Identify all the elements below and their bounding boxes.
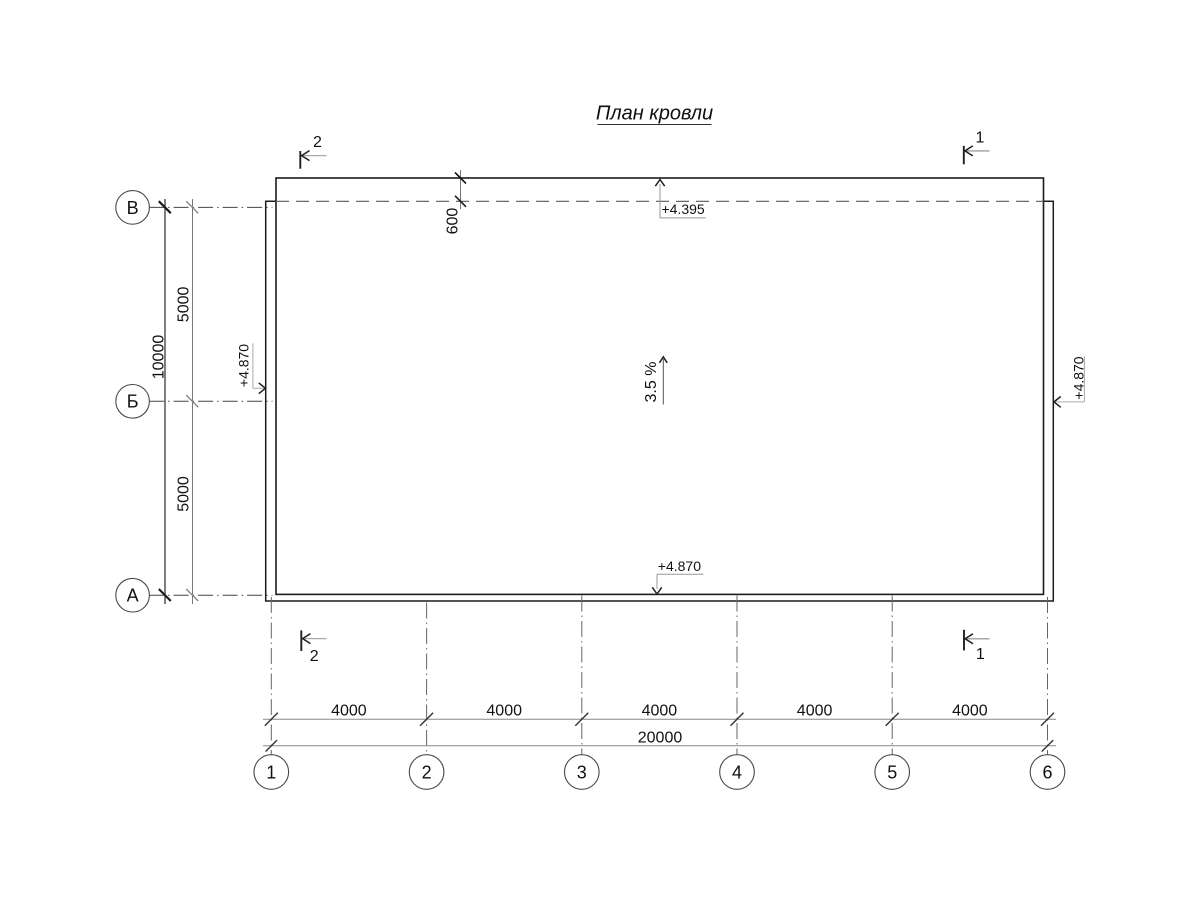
svg-text:4: 4 [732,762,742,782]
svg-text:+4.395: +4.395 [662,201,705,217]
svg-text:План кровли: План кровли [596,103,713,125]
svg-text:5000: 5000 [175,287,192,323]
svg-text:4000: 4000 [797,703,833,720]
svg-text:1: 1 [266,762,276,782]
svg-text:3.5 %: 3.5 % [643,362,660,403]
svg-text:4000: 4000 [642,703,678,720]
svg-text:20000: 20000 [638,730,683,747]
svg-text:4000: 4000 [486,703,522,720]
svg-text:6: 6 [1042,762,1052,782]
svg-text:2: 2 [422,762,432,782]
svg-text:+4.870: +4.870 [1070,356,1086,399]
svg-text:4000: 4000 [331,703,367,720]
svg-text:+4.870: +4.870 [235,344,251,387]
svg-text:Б: Б [127,392,139,412]
svg-text:600: 600 [444,208,461,235]
svg-text:2: 2 [310,648,319,665]
svg-text:3: 3 [577,762,587,782]
svg-text:4000: 4000 [952,703,988,720]
svg-text:1: 1 [976,646,985,663]
svg-text:2: 2 [313,134,322,151]
svg-text:5000: 5000 [175,476,192,512]
svg-text:+4.870: +4.870 [658,558,701,574]
svg-text:10000: 10000 [150,335,167,380]
svg-text:А: А [127,586,139,606]
svg-text:1: 1 [976,129,985,146]
svg-text:В: В [127,198,139,218]
svg-text:5: 5 [887,762,897,782]
